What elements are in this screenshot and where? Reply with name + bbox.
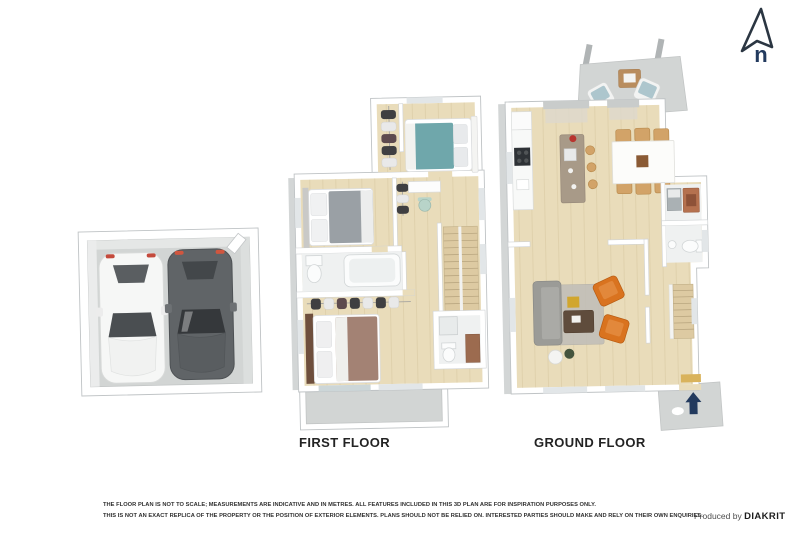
car-dark bbox=[164, 248, 239, 380]
side-table bbox=[567, 297, 579, 308]
toilet bbox=[682, 240, 698, 252]
disclaimer-line-2: THIS IS NOT AN EXACT REPLICA OF THE PROP… bbox=[103, 511, 703, 522]
entry-door-opening bbox=[679, 384, 701, 390]
pillow bbox=[311, 193, 327, 215]
bathroom bbox=[302, 252, 403, 292]
compass: n bbox=[734, 6, 786, 64]
doorway bbox=[372, 246, 388, 252]
pillow bbox=[454, 147, 468, 166]
window bbox=[478, 188, 485, 220]
dining-chair bbox=[616, 129, 631, 142]
island-sink bbox=[564, 149, 576, 161]
staircase bbox=[443, 226, 479, 311]
taillight-icon bbox=[175, 251, 184, 255]
centerpiece bbox=[636, 155, 648, 167]
window bbox=[543, 386, 587, 393]
window bbox=[506, 152, 513, 184]
north-letter: n bbox=[754, 42, 767, 64]
pillow bbox=[317, 351, 333, 377]
basin bbox=[668, 241, 676, 249]
vanity bbox=[466, 334, 481, 362]
garage-plan bbox=[72, 222, 268, 404]
pillow bbox=[453, 124, 467, 143]
wardrobe-closet bbox=[381, 106, 397, 170]
window bbox=[379, 383, 423, 390]
sliding-door bbox=[607, 99, 639, 108]
kitchen-island bbox=[560, 134, 585, 202]
ground-floor-plan bbox=[490, 38, 725, 434]
produced-by-text: Produced by bbox=[694, 511, 742, 521]
bar-stool bbox=[587, 163, 596, 172]
doorway bbox=[403, 290, 415, 296]
kitchen-counter bbox=[512, 130, 534, 210]
first-floor-plan bbox=[288, 92, 498, 437]
disclaimer: THE FLOOR PLAN IS NOT TO SCALE; MEASUREM… bbox=[103, 500, 703, 521]
bed-teal bbox=[405, 116, 478, 173]
bed-gray bbox=[302, 186, 373, 247]
bar-stool bbox=[586, 146, 595, 155]
first-floor-label: FIRST FLOOR bbox=[299, 435, 390, 450]
desk-chair bbox=[419, 199, 431, 211]
window bbox=[691, 298, 698, 324]
shower bbox=[439, 317, 457, 335]
taillight-icon bbox=[147, 253, 156, 257]
staircase bbox=[669, 284, 694, 338]
sliding-door bbox=[319, 384, 371, 391]
toilet bbox=[443, 348, 455, 362]
kitchen-sink bbox=[517, 180, 529, 190]
dining-chair bbox=[654, 129, 669, 142]
laundry bbox=[667, 188, 699, 213]
bed-master-brown bbox=[305, 312, 380, 384]
sliding-door bbox=[543, 100, 589, 109]
floorplan-page: n bbox=[0, 0, 800, 539]
window bbox=[407, 97, 443, 104]
taillight-icon bbox=[216, 250, 225, 254]
taillight-icon bbox=[106, 254, 115, 258]
doormat bbox=[681, 374, 701, 382]
window bbox=[297, 320, 304, 354]
car-white bbox=[95, 252, 170, 384]
ground-floor-label: GROUND FLOOR bbox=[534, 435, 646, 450]
window bbox=[295, 198, 302, 228]
window bbox=[605, 385, 645, 392]
dining-chair bbox=[635, 128, 650, 141]
pillow bbox=[311, 219, 327, 241]
window bbox=[509, 298, 516, 332]
window bbox=[480, 244, 487, 274]
toilet bbox=[307, 264, 321, 282]
wardrobe-closet bbox=[396, 182, 409, 216]
window bbox=[702, 230, 708, 252]
floor-lamp bbox=[548, 350, 562, 364]
disclaimer-line-1: THE FLOOR PLAN IS NOT TO SCALE; MEASUREM… bbox=[103, 500, 703, 511]
produced-by: Produced by DIAKRIT bbox=[694, 511, 785, 522]
fridge bbox=[511, 112, 531, 130]
cooktop bbox=[514, 148, 530, 166]
powder-room bbox=[666, 225, 703, 263]
diakrit-logo: DIAKRIT bbox=[744, 511, 785, 522]
bar-stool bbox=[588, 180, 597, 189]
pillow bbox=[316, 321, 332, 347]
ensuite bbox=[433, 310, 486, 369]
